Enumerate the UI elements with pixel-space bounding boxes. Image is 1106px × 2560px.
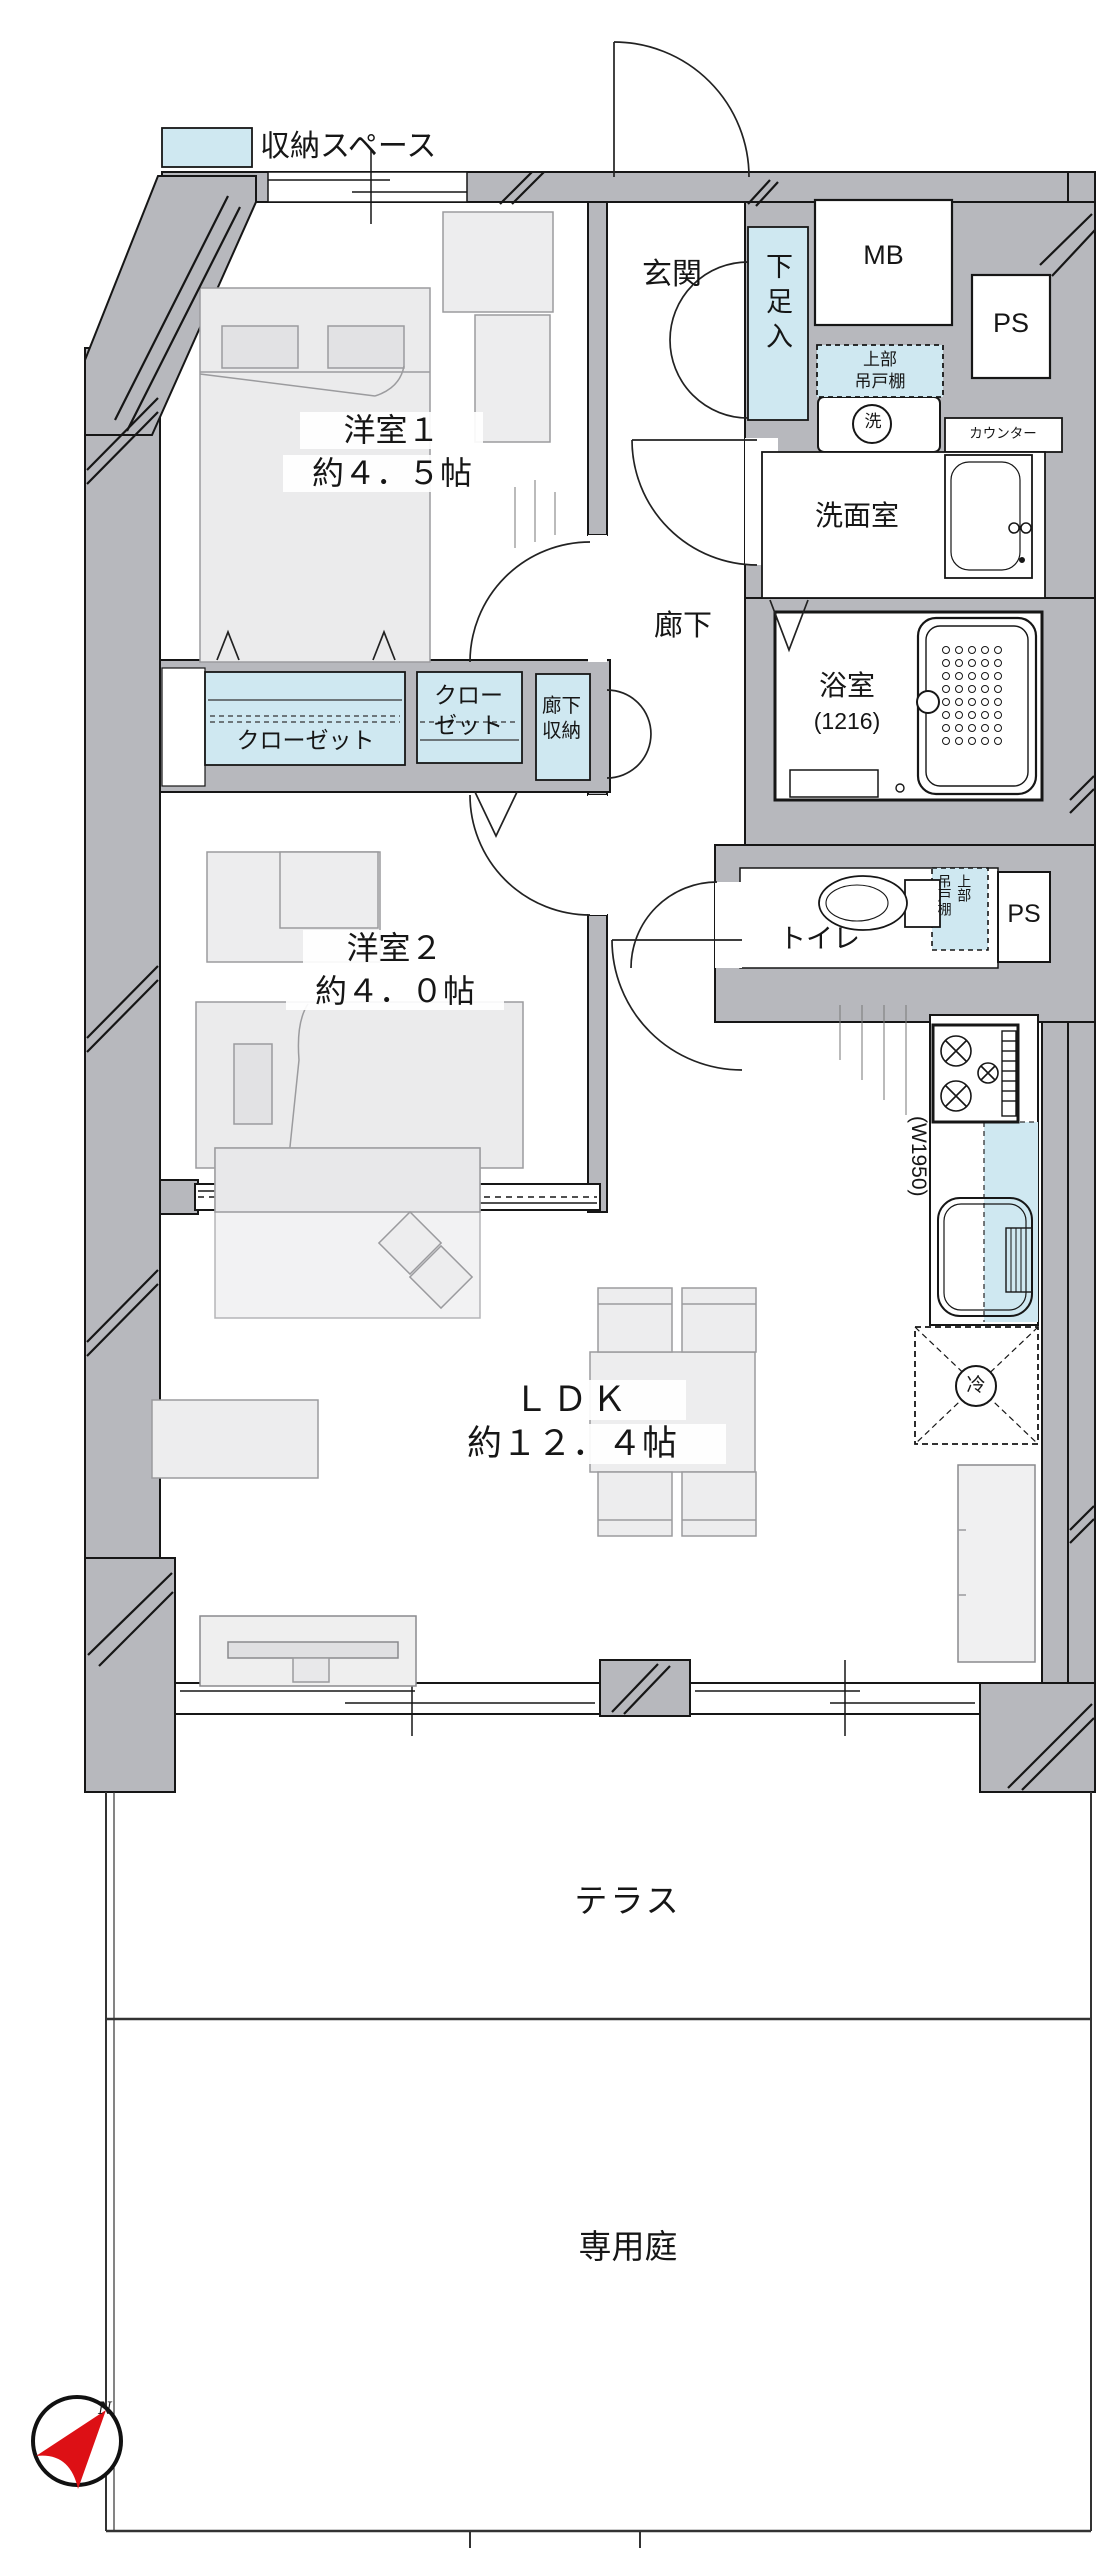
tv <box>228 1642 398 1658</box>
label-closet1: クローゼット <box>208 727 403 753</box>
room2-chair <box>280 852 378 928</box>
label-room2: 洋室２ <box>303 930 486 967</box>
label-pipe-space-top: PS <box>972 308 1050 339</box>
stove-grill <box>1002 1031 1016 1116</box>
label-fridge: 冷 <box>956 1375 996 1397</box>
label-meter-box: MB <box>815 240 952 271</box>
compass-north-label: N <box>98 2398 112 2420</box>
label-washroom: 洗面室 <box>772 500 942 532</box>
ldk-table <box>152 1400 318 1478</box>
closet2-folding-door <box>475 792 517 836</box>
label-closet2: クロー ゼット <box>415 681 522 741</box>
room1-window <box>268 172 467 202</box>
label-room1: 洋室１ <box>300 412 483 449</box>
label-genkan: 玄関 <box>607 258 737 293</box>
room1-pillow <box>328 326 404 368</box>
label-garden: 専用庭 <box>528 2228 728 2266</box>
label-toilet: トイレ <box>752 924 887 955</box>
legend-swatch <box>162 128 252 167</box>
label-bath-size: (1216) <box>762 708 932 734</box>
label-room2-size: 約４．０帖 <box>286 973 504 1010</box>
label-counter: カウンター <box>944 426 1062 442</box>
label-upper-cabinet: 上部 吊戸棚 <box>815 349 945 393</box>
label-ldk-size: 約１２．４帖 <box>418 1424 726 1464</box>
label-washer: 洗 <box>853 412 893 432</box>
ldk-window-left <box>175 1683 600 1714</box>
label-ldk: ＬＤＫ <box>458 1380 686 1420</box>
entrance-door-arc <box>614 42 749 177</box>
label-kitchen-width: (W1950) <box>906 1116 930 1197</box>
label-room1-size: 約４．５帖 <box>283 455 501 492</box>
legend-label: 収納スペース <box>260 130 436 165</box>
label-hallway: 廊下 <box>643 610 723 643</box>
label-toilet-cabinet: 上部 吊戸棚 <box>934 874 973 916</box>
room2-pillow <box>234 1044 272 1124</box>
label-bath: 浴室 <box>762 670 932 702</box>
hall-storage-doors <box>607 690 651 778</box>
washbasin-bowl <box>951 462 1020 570</box>
label-shoe-cabinet: 下足入 <box>761 252 792 357</box>
label-pipe-space-bottom: PS <box>997 900 1051 929</box>
washroom-door-arc <box>632 440 757 565</box>
label-terrace: テラス <box>528 1882 728 1920</box>
room1-pillow <box>222 326 298 368</box>
shoe-cabinet-door <box>670 340 748 418</box>
room1-shelf <box>475 315 550 442</box>
ldk-cabinet <box>958 1465 1035 1662</box>
room2-door-arc <box>470 795 590 915</box>
ldk-sofa <box>215 1148 480 1212</box>
room1-desk <box>443 212 553 312</box>
bath-counter <box>790 770 878 797</box>
toilet-door-arc <box>631 882 717 968</box>
ldk-window-right <box>690 1683 980 1714</box>
floor-plan: 収納スペース 玄関 下足入 MB PS 上部 吊戸棚 洗 カウンター 洗面室 浴… <box>0 0 1106 2560</box>
label-hall-storage: 廊下 収納 <box>533 694 590 744</box>
tv-board-center <box>293 1658 329 1682</box>
room1-door-arc <box>470 542 590 662</box>
